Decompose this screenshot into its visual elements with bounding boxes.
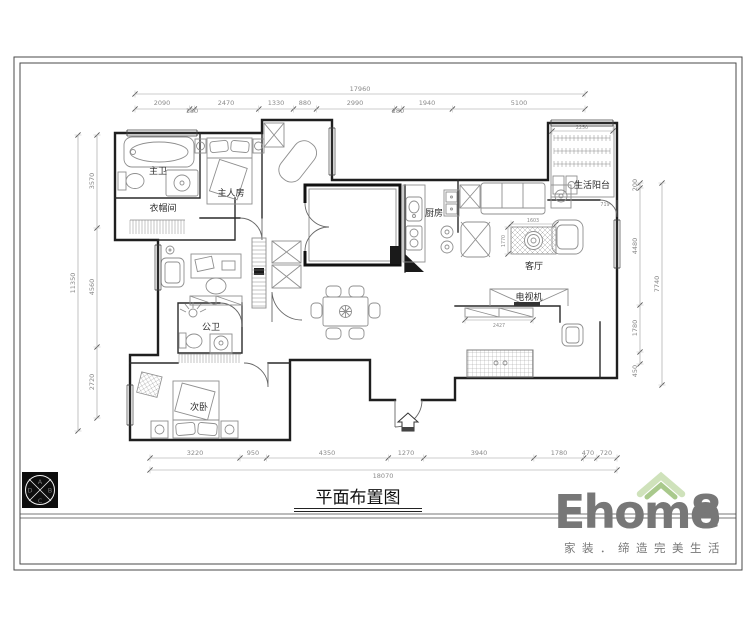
room-labels: 主卫 衣帽间 主人房 厨房 客厅 生活阳台 公卫 次卧 电视机: [149, 165, 610, 412]
dim-rug-width: 1603: [527, 218, 539, 224]
dim-bottom-seg: 950: [247, 449, 259, 457]
walls: [115, 120, 617, 440]
compass-letter-left: D: [27, 487, 32, 495]
tv-screen: [514, 302, 540, 306]
living-rug: [511, 227, 556, 254]
compass-letter-bottom: C: [38, 497, 43, 505]
dim-right-seg: 450: [631, 365, 639, 377]
window-symbols: [127, 120, 620, 425]
sheet-title: 平面布置图: [316, 488, 401, 507]
room-label-tv: 电视机: [515, 291, 542, 302]
hall-chair: [562, 324, 583, 346]
bathtub: [124, 137, 194, 167]
dim-top-seg: 2470: [218, 99, 235, 107]
kitchen-corner-counter: [405, 254, 424, 272]
compass-icon: A B C D: [22, 472, 58, 508]
room-label-master-bath: 主卫: [149, 165, 167, 176]
room-label-second-bedroom: 次卧: [190, 401, 208, 412]
dim-top-seg: 1330: [268, 99, 285, 107]
dim-top-overall: 17960: [350, 85, 371, 93]
dim-left-seg: 3570: [88, 173, 96, 190]
dim-right-overall: 7740: [653, 276, 661, 293]
dim-right-seg: 200: [631, 179, 639, 191]
dim-bottom-seg: 720: [600, 449, 612, 457]
dim-top-seg: 880: [299, 99, 311, 107]
kitchen-counter: [403, 185, 459, 262]
dim-sofa-depth: 1770: [501, 235, 507, 247]
guest-toilet: [179, 333, 202, 348]
column-block: [390, 246, 400, 264]
shower-head: [180, 302, 206, 317]
compass-letter-right: B: [48, 487, 52, 495]
second-bed: [137, 372, 238, 438]
dim-top-seg: 280: [392, 107, 404, 115]
tatami-room-inner-line: [309, 189, 396, 261]
dim-bottom-seg: 1780: [551, 449, 568, 457]
dim-bottom-overall: 18070: [373, 472, 394, 480]
compass-letter-top: A: [38, 478, 43, 486]
study-desk-area: [161, 238, 301, 308]
dimension-lines: [75, 91, 666, 474]
room-label-kitchen: 厨房: [425, 207, 443, 218]
hall-door: [272, 292, 302, 322]
guest-bath-door: [220, 303, 242, 327]
entry-arrow-icon: [398, 413, 418, 431]
dim-tv-cabinet: 2427: [493, 323, 505, 329]
dim-bottom-seg: 3940: [471, 449, 488, 457]
dim-top-seg: 1940: [419, 99, 436, 107]
dim-left-seg: 4560: [88, 279, 96, 296]
dim-top-seg: 2990: [347, 99, 364, 107]
toilet: [118, 172, 144, 190]
washing-machine: [210, 334, 232, 353]
dim-right-seg: 1780: [631, 320, 639, 337]
room-label-balcony: 生活阳台: [574, 179, 610, 190]
exterior-wall: [115, 120, 617, 440]
bathroom-vanity: [166, 170, 198, 196]
room-label-living-room: 客厅: [525, 260, 543, 271]
room-label-master-bedroom: 主人房: [217, 187, 244, 198]
furniture: [118, 123, 614, 438]
second-bedroom-door: [244, 363, 268, 387]
dim-bottom-seg: 3220: [187, 449, 204, 457]
dim-top-seg: 180: [186, 107, 198, 115]
floor-plan-drawing: 17960 2090 180 2470 1330 880 2990 280 19…: [0, 0, 756, 630]
dim-bottom-seg: 1270: [398, 449, 415, 457]
dining-table: [311, 286, 380, 339]
dim-left-seg: 2720: [88, 374, 96, 391]
room-label-cloakroom: 衣帽间: [149, 202, 176, 213]
dim-top-seg: 5100: [511, 99, 528, 107]
dim-top-seg: 2090: [154, 99, 171, 107]
room-label-guest-bath: 公卫: [202, 322, 220, 332]
hall-cabinet: [467, 350, 533, 377]
chaise-lounge: [264, 123, 321, 187]
floor-plan-sheet: 17960 2090 180 2470 1330 880 2990 280 19…: [0, 0, 756, 630]
title-block: 平面布置图: [294, 488, 422, 512]
dim-balcony-width: 2250: [576, 125, 588, 131]
dim-balcony-door: 719: [600, 202, 609, 208]
bedroom-rug: [137, 372, 162, 397]
dim-right-seg: 4480: [631, 238, 639, 255]
brand-logo: Ehome 8 家装．缔造完美生活: [554, 476, 726, 555]
master-bedroom-door: [240, 218, 262, 240]
dim-bottom-seg: 4350: [319, 449, 336, 457]
dim-bottom-seg: 470: [582, 449, 594, 457]
logo-brand-8: 8: [690, 485, 722, 539]
logo-tagline: 家装．缔造完美生活: [564, 541, 726, 555]
dim-left-overall: 11350: [69, 273, 77, 294]
